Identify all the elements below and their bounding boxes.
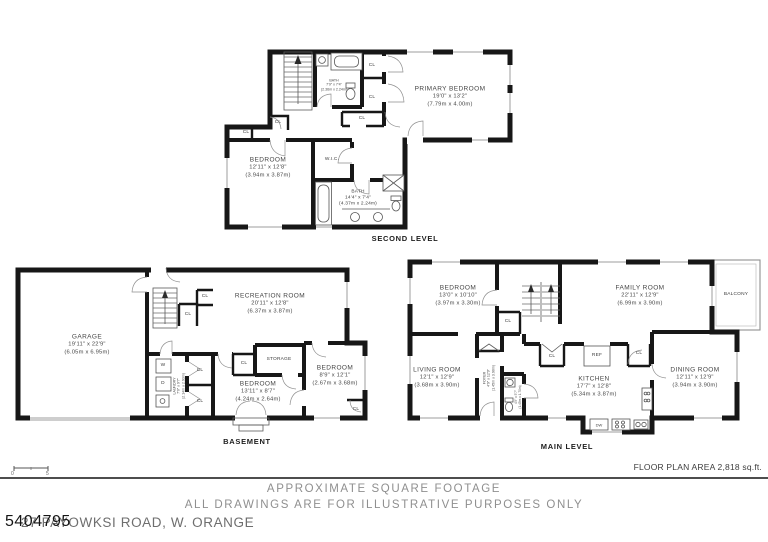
balcony-label: BALCONY <box>724 292 748 298</box>
room-label-recreation: RECREATION ROOM 20'11" x 12'8" (6.37m x … <box>235 292 305 316</box>
room-label-bedroom-b2: BEDROOM 8'9" x 12'1" (2.67m x 3.68m) <box>312 364 357 388</box>
footer-note-1: APPROXIMATE SQUARE FOOTAGE <box>0 483 768 495</box>
dryer-label: D <box>161 381 165 387</box>
closet-label: CL <box>241 361 248 367</box>
floor-plan-page: PRIMARY BEDROOM 19'0" x 13'2" (7.79m x 4… <box>0 0 768 542</box>
room-label-bedroom-main: BEDROOM 13'0" x 10'10" (3.97m x 3.30m) <box>435 284 480 308</box>
footer-note-2: ALL DRAWINGS ARE FOR ILLUSTRATIVE PURPOS… <box>0 499 768 511</box>
closet-label: CL <box>275 120 282 126</box>
room-label-foyer: FOYER 4'9" x 12'9" (1.45m x 3.90m) <box>482 365 495 391</box>
listing-number-watermark: 5404795 <box>5 513 71 531</box>
level-title-main: MAIN LEVEL <box>541 442 593 451</box>
refrigerator-label: REF <box>592 353 602 359</box>
second-level-walls <box>222 40 522 245</box>
washer-label: W <box>161 363 166 369</box>
room-label-primary-bedroom: PRIMARY BEDROOM 19'0" x 13'2" (7.79m x 4… <box>415 85 486 109</box>
level-title-basement: BASEMENT <box>223 437 271 446</box>
closet-label: CL <box>636 351 643 357</box>
main-level-plan: BEDROOM 13'0" x 10'10" (3.97m x 3.30m) F… <box>402 256 766 452</box>
room-label-dining-room: DINING ROOM 12'11" x 12'9" (3.94m x 3.90… <box>670 366 719 390</box>
closet-label: CL <box>369 95 376 101</box>
footer-divider <box>0 477 768 479</box>
second-level-plan: PRIMARY BEDROOM 19'0" x 13'2" (7.79m x 4… <box>222 40 522 250</box>
closet-label: CL <box>353 407 360 413</box>
room-label-powder: 4'9" x 5'7" (1.45m x 1.70m) <box>515 385 523 408</box>
room-label-bedroom-2f: BEDROOM 12'11" x 12'8" (3.94m x 3.87m) <box>245 156 290 180</box>
dishwasher-label: DW <box>596 422 603 427</box>
room-label-family-room: FAMILY ROOM 22'11" x 12'9" (6.99m x 3.90… <box>616 284 665 308</box>
closet-label: CL <box>505 319 512 325</box>
closet-label: CL <box>369 63 376 69</box>
closet-label: CL <box>185 312 192 318</box>
room-label-bedroom-b1: BEDROOM 13'11" x 8'7" (4.24m x 2.64m) <box>235 380 280 404</box>
room-label-kitchen: KITCHEN 17'7" x 12'8" (5.34m x 3.87m) <box>571 375 616 399</box>
closet-label: CL <box>359 116 366 122</box>
closet-label: CL <box>197 399 204 405</box>
room-label-bath-upper: BATH 7'9" x 7'4" (2.36m x 2.24m) <box>321 79 347 92</box>
closet-label: CL <box>243 130 250 136</box>
basement-plan: GARAGE 19'11" x 22'9" (6.05m x 6.95m) RE… <box>14 264 396 450</box>
room-label-laundry: LAUNDRY 7'0" x 9'7" (2.14m x 2.93m) <box>172 373 185 399</box>
closet-label: CL <box>549 354 556 360</box>
room-label-bath-main: BATH 14'4" x 7'4" (4.37m x 2.24m) <box>339 190 377 209</box>
closet-label: CL <box>197 368 204 374</box>
closet-label: CL <box>202 294 209 300</box>
basement-walls <box>14 264 396 450</box>
floor-plan-area-note: FLOOR PLAN AREA 2,818 sq.ft. <box>634 462 762 472</box>
room-label-wic: W.I.C. <box>325 157 339 163</box>
room-label-living-room: LIVING ROOM 12'1" x 12'9" (3.68m x 3.90m… <box>413 366 461 390</box>
room-label-storage: STORAGE <box>267 357 292 363</box>
room-label-garage: GARAGE 19'11" x 22'9" (6.05m x 6.95m) <box>64 333 109 357</box>
level-title-second: SECOND LEVEL <box>372 234 439 243</box>
